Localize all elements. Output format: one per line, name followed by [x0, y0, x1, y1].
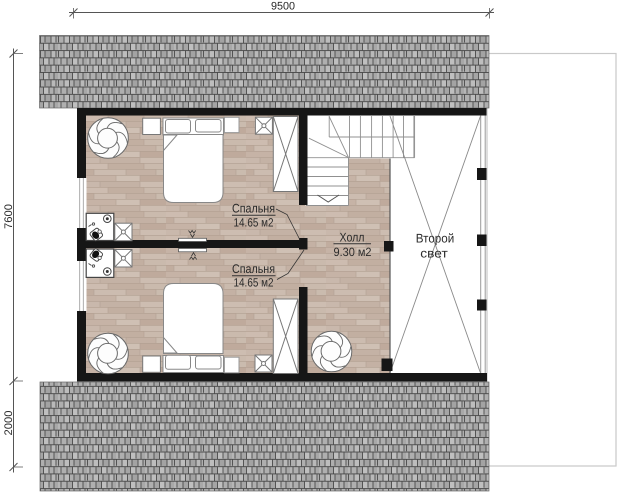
svg-text:Спальня: Спальня: [232, 262, 275, 276]
svg-text:7600: 7600: [3, 204, 15, 229]
svg-text:Холл: Холл: [340, 231, 365, 245]
svg-text:9.30 м2: 9.30 м2: [334, 245, 372, 259]
svg-text:14.65 м2: 14.65 м2: [234, 276, 274, 290]
svg-text:9500: 9500: [271, 1, 295, 13]
svg-text:Спальня: Спальня: [232, 202, 275, 216]
svg-text:14.65 м2: 14.65 м2: [234, 216, 274, 230]
svg-text:Второй: Второй: [416, 232, 455, 246]
svg-text:2000: 2000: [3, 411, 15, 436]
svg-text:свет: свет: [420, 247, 448, 261]
